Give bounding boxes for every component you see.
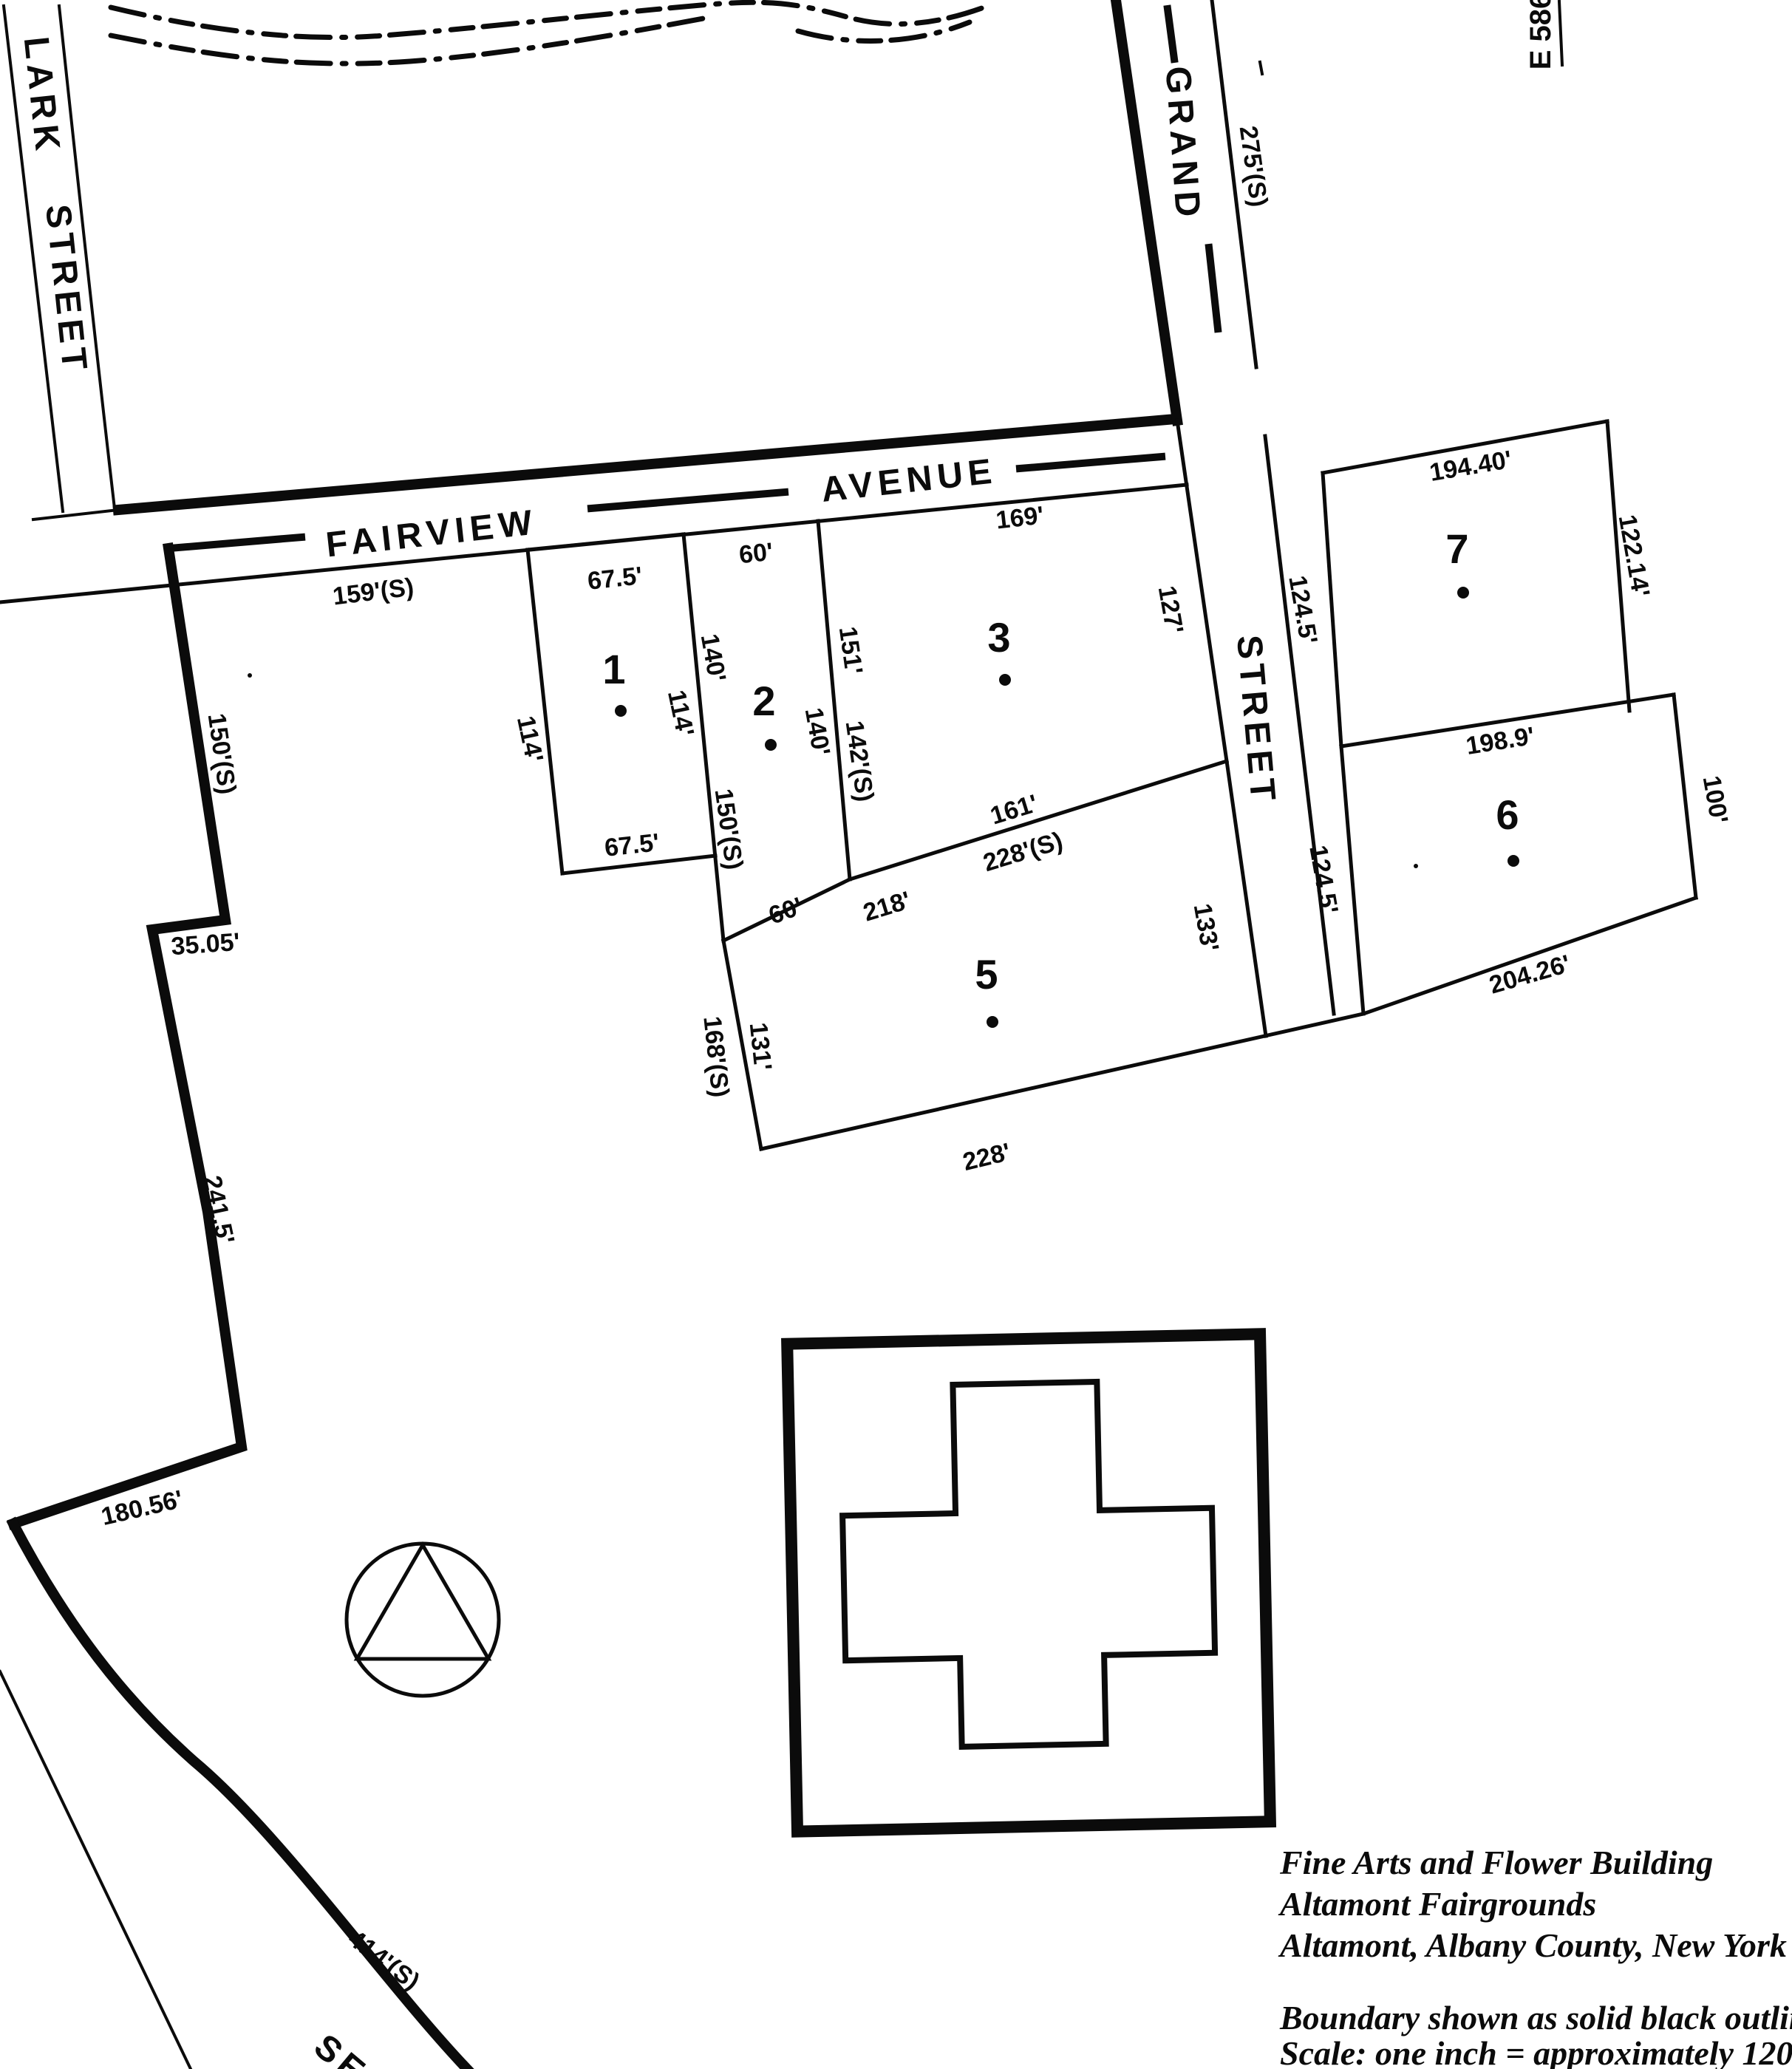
parcel1-west-line [528,550,562,873]
parcel5-dot [987,1016,998,1028]
parcel1-top-line [528,534,684,550]
grand-street: GRAND STREET 275'(S) [1116,0,1334,1036]
dim-fairview-south-frontage: 159'(S) [331,573,415,610]
dim-p1-top: 67.5' [586,562,644,596]
pond-contour-lower [111,17,711,64]
parcel6-east-line [1674,695,1696,898]
dim-p5-east: 133' [1188,901,1224,953]
parcel1-east-parcel2-west-line [684,534,723,941]
plat-map-svg: E 586 LARK STREET FAIRVIEW AVENUE 159'(S… [0,0,1792,2069]
dim-west-jog: 35.05' [170,928,241,961]
grand-street-name-2: STREET [1229,633,1283,807]
grand-centerline-dash-1 [1168,9,1174,59]
parcel6-number: 6 [1496,791,1519,838]
caption-line-3: Altamont, Albany County, New York [1278,1926,1787,1964]
parcel-7: 7 194.40' 122.14' 124.5' [1283,421,1655,746]
dim-p2-east: 140' [800,706,836,757]
dim-p1-bottom: 67.5' [603,828,661,862]
dim-p5-west-a: 168'(S) [698,1015,734,1099]
dim-p6-top: 198.9' [1464,722,1536,760]
lark-street-name-1: LARK [16,35,68,157]
dim-p3-east: 127' [1153,584,1189,635]
dim-p1-east: 114' [662,687,699,738]
caption-line-1: Fine Arts and Flower Building [1279,1844,1713,1881]
fairview-north-edge-west-stub [33,510,118,519]
legend-line-2: Scale: one inch = approximately 120' [1280,2034,1792,2069]
plat-map-page: E 586 LARK STREET FAIRVIEW AVENUE 159'(S… [0,0,1792,2069]
caption-block: Fine Arts and Flower Building Altamont F… [1278,1844,1792,2069]
dim-p2-top: 60' [737,538,774,570]
dim-p5-west-b: 131' [744,1021,777,1071]
parcel2-east-parcel3-west-line [818,521,850,879]
scan-speck [1414,864,1418,868]
dim-p3-west-b: 142'(S) [840,719,879,803]
parcel7-number: 7 [1445,525,1468,572]
parcel2-number: 2 [752,678,775,724]
sheet-ref-label: E 586 [1524,0,1557,69]
fairview-street-name: FAIRVIEW [324,502,539,565]
caption-line-2: Altamont Fairgrounds [1278,1885,1596,1923]
dim-p2-west: 140' [695,632,732,684]
dim-p2-bottom: 60' [765,892,806,930]
dim-p3-top: 169' [995,501,1046,534]
avenue-street-name: AVENUE [820,451,999,510]
parcel3-dot [999,674,1011,686]
grand-street-name-1: GRAND [1158,65,1208,223]
parcel3-number: 3 [987,614,1010,661]
parcel7-dot [1457,587,1469,599]
dim-p6-east: 100' [1697,774,1734,825]
parcel-3: 3 169' 151' 142'(S) 127' 161' 228'(S) 21… [834,501,1227,927]
landmark-triangle [357,1545,488,1659]
scan-speck [248,673,252,678]
parcel-6: 6 198.9' 100' 204.26' 124.5' [1304,695,1733,1014]
parcel-1-and-2: 1 67.5' 114' 114' 67.5' 2 60' 140' 140' … [511,521,850,941]
south-boundary-line [761,898,1696,1149]
parcel-5: 5 168'(S) 131' 228' 133' [698,898,1696,1176]
fairview-centerline-dash-1 [170,537,301,548]
pond-contour-upper [111,2,992,37]
dim-p6-west: 124.5' [1304,843,1343,916]
dim-p5-south: 228' [960,1138,1013,1176]
parcel6-dot [1507,855,1519,867]
boundary-west-polyline [13,548,242,1524]
parcel5-number: 5 [975,951,998,998]
sheet-ref-underline [1559,1,1562,65]
fairview-centerline-dash-3 [1020,457,1162,468]
dim-p3-west-a: 151' [834,624,868,675]
pond-contours [111,2,992,64]
dim-p3-south-c: 218' [860,886,914,927]
landmark-circle [347,1544,499,1696]
lark-street-name-2: STREET [38,202,95,377]
lark-street: LARK STREET [4,6,115,511]
building-site-square [787,1334,1270,1831]
legend-line-1: Boundary shown as solid black outline [1279,1999,1792,2036]
parcel7-west-line [1323,473,1341,746]
boundary-fairview-north [118,419,1176,510]
dim-p3-south-a: 161' [987,789,1041,830]
sheet-ref-group: E 586 [1524,0,1562,69]
parcel1-number: 1 [602,646,625,692]
circle-triangle-landmark [347,1544,499,1696]
fairgrounds-west-boundary: 150'(S) 35.05' 241.5' 180.56' 414'(S) SE [0,548,467,2069]
fine-arts-building [787,1334,1270,1831]
parcel2-dot [765,739,777,751]
dim-grand-east-frontage: 275'(S) [1234,124,1273,208]
survey-tick-mark [1260,62,1262,74]
south-street-name-partial: SE [307,2027,376,2069]
fairview-centerline-dash-2 [591,492,785,508]
dim-p1-west: 114' [511,713,548,764]
grand-centerline-dash-2 [1209,248,1218,329]
parcel6-west-line [1341,746,1363,1014]
parcel1-dot [615,705,627,717]
dim-street-414s: 414'(S) [343,1924,425,1996]
building-cross-footprint [839,1380,1216,1749]
